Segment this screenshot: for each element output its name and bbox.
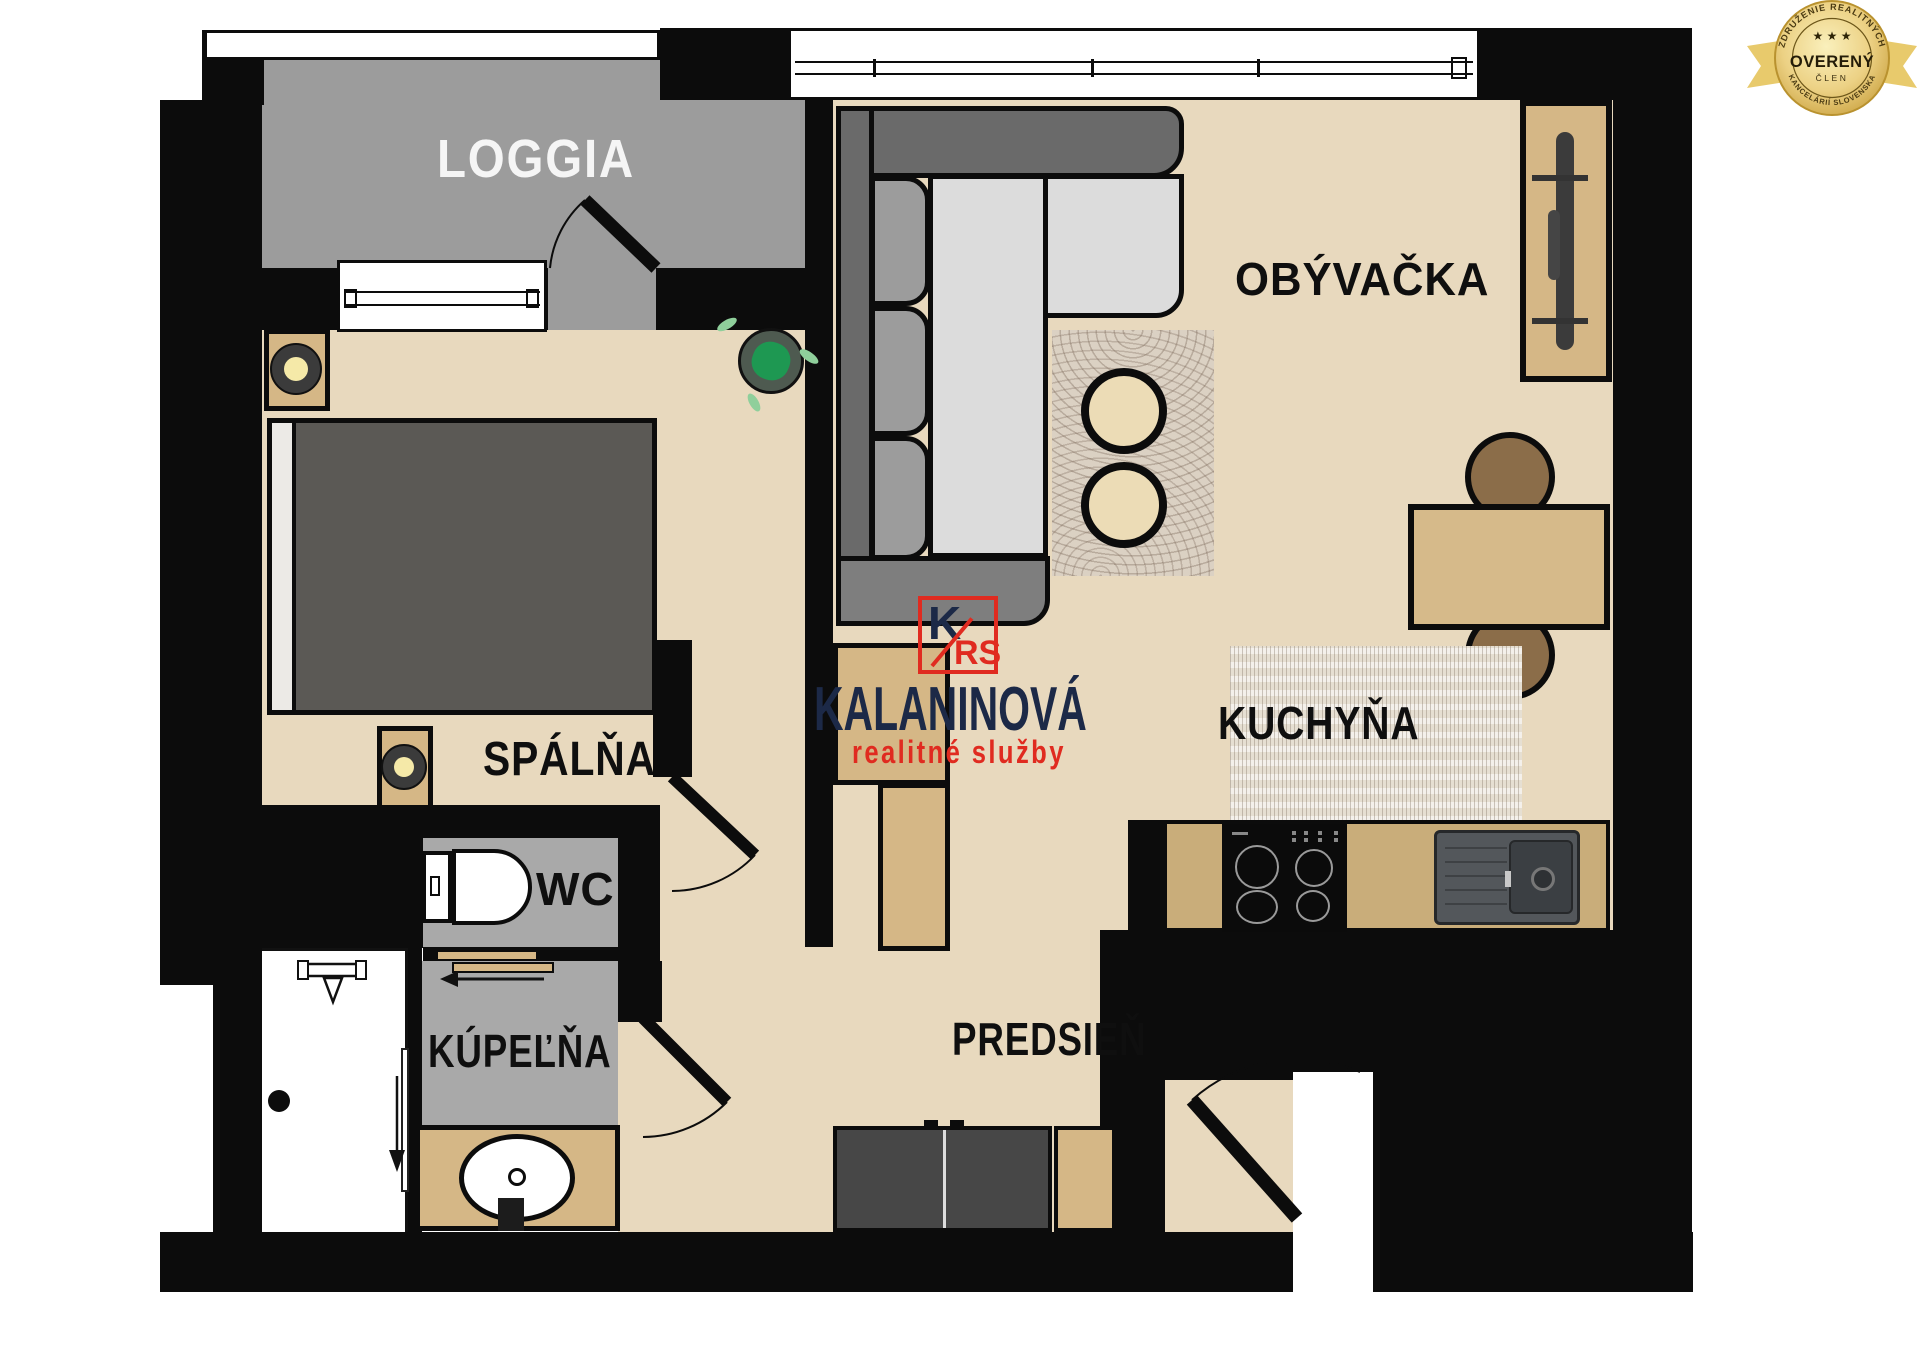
kitchen-sink-icon [1434, 830, 1580, 925]
wall-counter-left-stub [1128, 820, 1165, 930]
sofa-backrest-left [836, 106, 874, 564]
hallway-entry-floor [1165, 1080, 1293, 1232]
shower-drain [268, 1090, 290, 1112]
wardrobe [833, 1126, 1052, 1232]
wall-bedroom-living [805, 60, 833, 947]
lamp-icon [381, 744, 427, 790]
room-label-hallway: PREDSIEŇ [952, 1012, 1147, 1066]
lamp-icon [270, 343, 322, 395]
floorplan-canvas: LOGGIA OBÝVAČKA SPÁLŇA WC KÚPEĽŇA PREDSI… [0, 0, 1919, 1356]
wall-wc-right [618, 835, 660, 947]
room-label-wc: WC [536, 862, 615, 916]
sliding-door-panel [436, 950, 538, 961]
hall-shelf [878, 783, 950, 951]
window-divider [1257, 59, 1260, 77]
coffee-table [1081, 462, 1167, 548]
badge-title: OVERENÝ [1790, 52, 1874, 71]
sofa-chaise [928, 174, 1048, 558]
brand-tagline: realitné služby [852, 734, 1066, 771]
shower-glass-door [401, 1048, 409, 1192]
window-glass-line [795, 61, 1473, 75]
wardrobe-handle [950, 1120, 964, 1128]
coffee-table [1081, 368, 1167, 454]
entrance-opening [1293, 1072, 1373, 1292]
window-divider [873, 59, 876, 77]
sofa-cushion [870, 436, 930, 560]
room-label-loggia: LOGGIA [437, 128, 635, 190]
wall-bathroom-right [618, 961, 662, 1022]
wardrobe-handle [924, 1120, 938, 1128]
bed-headboard [272, 423, 296, 710]
window-divider [1091, 59, 1094, 77]
badge-stars: ★ ★ ★ [1813, 29, 1852, 43]
bedroom-hall-connector-floor [660, 805, 805, 947]
open-space-floor-patch [833, 930, 1100, 950]
wall-right-of-entrance [1373, 1072, 1613, 1232]
window-divider-box [1451, 57, 1467, 79]
wall-right [1613, 28, 1692, 1292]
sofa-cushion [870, 306, 930, 436]
tv-foot [1532, 175, 1588, 181]
dining-table [1408, 504, 1610, 630]
sofa-backrest-top [836, 106, 1184, 178]
wall-left-lower [213, 985, 262, 1237]
tv-foot [1532, 318, 1588, 324]
plant-icon [738, 328, 804, 394]
room-label-bathroom: KÚPEĽŇA [428, 1024, 611, 1078]
balcony-end-box [526, 289, 539, 308]
balcony-end-box [344, 289, 357, 308]
wall-bedroom-door-stub [653, 640, 692, 777]
room-label-kitchen: KUCHYŇA [1218, 696, 1419, 750]
badge-subtitle: ČLEN [1816, 73, 1849, 83]
wall-wc-left-chunk [202, 838, 423, 948]
sliding-door-panel [452, 962, 554, 973]
sofa-cushion [870, 176, 930, 306]
logo-monogram-rs: RS [954, 634, 1001, 673]
balcony-glass-line [344, 291, 540, 306]
bed [267, 418, 657, 715]
toilet-bowl [452, 849, 532, 925]
cooktop-icon [1222, 824, 1347, 932]
sink-drain-ring [508, 1168, 526, 1186]
hall-cabinet [1054, 1126, 1116, 1232]
sink-faucet [498, 1198, 524, 1231]
sink-drain [1531, 867, 1555, 891]
tv-mount [1548, 210, 1560, 280]
living-room-window [788, 28, 1480, 100]
wall-bottom [160, 1232, 1693, 1292]
balcony-door-opening [548, 268, 656, 330]
logo-monogram-box: K RS [918, 596, 998, 674]
loggia-window [204, 30, 660, 60]
verified-badge: ZDRUŽENIE REALITNÝCH ★ ★ ★ OVERENÝ ČLEN … [1745, 0, 1919, 120]
toilet-button [430, 876, 440, 896]
room-label-bedroom: SPÁLŇA [483, 732, 656, 787]
brand-logo: K RS KALANINOVÁ realitné služby [812, 594, 1132, 774]
balcony-window-unit [337, 260, 547, 332]
wall-bottom-right-mass [1165, 930, 1613, 1080]
room-label-living: OBÝVAČKA [1235, 252, 1489, 306]
